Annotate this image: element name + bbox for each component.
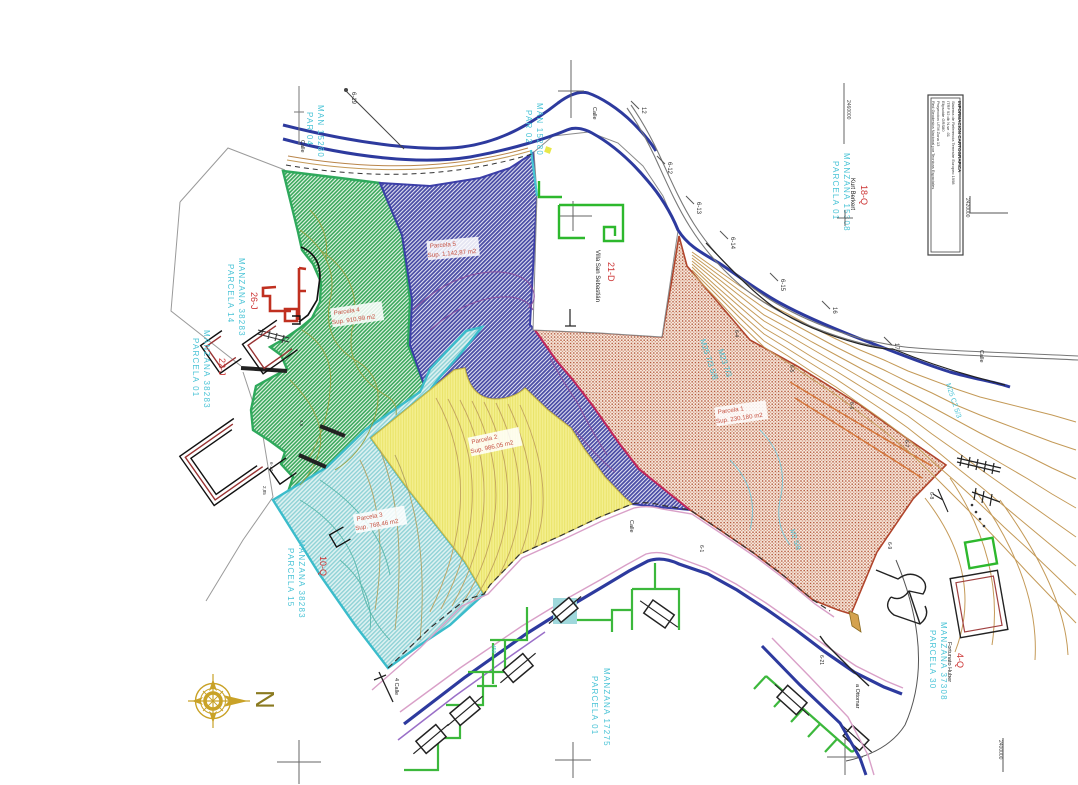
svg-text:MAN 15280: MAN 15280	[535, 103, 544, 156]
svg-text:6-7: 6-7	[903, 440, 909, 447]
svg-text:6-5: 6-5	[788, 365, 794, 372]
svg-text:PARCELA 01: PARCELA 01	[590, 676, 599, 735]
svg-text:26-J: 26-J	[249, 292, 259, 310]
svg-text:6-9: 6-9	[886, 542, 892, 549]
svg-text:PARCELA 14: PARCELA 14	[226, 264, 235, 323]
svg-text:6-1: 6-1	[698, 545, 704, 552]
svg-text:Villa San Sebastián: Villa San Sebastián	[594, 250, 600, 302]
svg-text:INFORMACION CARTOGRAFICA: INFORMACION CARTOGRAFICA	[957, 101, 962, 173]
svg-text:Calle: Calle	[978, 350, 984, 363]
svg-text:Calle: Calle	[591, 107, 597, 120]
svg-text:4,6: 4,6	[299, 420, 304, 427]
svg-text:6-12: 6-12	[666, 162, 672, 175]
svg-text:10-Q: 10-Q	[318, 556, 328, 576]
svg-text:6-14: 6-14	[729, 237, 735, 250]
svg-text:MANZANA 17275: MANZANA 17275	[602, 668, 611, 747]
svg-text:18-Q: 18-Q	[859, 185, 869, 205]
svg-text:MANZANA 38283: MANZANA 38283	[202, 330, 211, 409]
svg-text:2460000: 2460000	[845, 100, 851, 120]
svg-text:Kurt Berkert: Kurt Berkert	[849, 178, 855, 210]
svg-text:6-19: 6-19	[350, 92, 356, 105]
svg-text:MANZANA 38283: MANZANA 38283	[237, 258, 246, 337]
svg-text:MAN 15280: MAN 15280	[316, 105, 325, 158]
svg-text:PAR 04: PAR 04	[305, 112, 314, 146]
svg-text:4-Q: 4-Q	[955, 653, 965, 668]
svg-text:6-4: 6-4	[733, 330, 739, 337]
svg-text:6-6: 6-6	[848, 402, 854, 409]
svg-text:Red Geodesica Nacional por Tec: Red Geodesica Nacional por Tecnicas Espa…	[931, 101, 936, 189]
svg-text:12: 12	[640, 107, 646, 114]
svg-text:MANZANA 38283: MANZANA 38283	[297, 540, 306, 619]
svg-text:6-8: 6-8	[928, 492, 934, 499]
svg-text:Calle: Calle	[299, 140, 305, 153]
svg-text:450: 450	[490, 645, 496, 654]
svg-text:6-13: 6-13	[695, 202, 701, 215]
svg-text:PARCELA 01: PARCELA 01	[831, 161, 840, 220]
svg-text:16: 16	[831, 307, 837, 314]
svg-text:2,85: 2,85	[262, 486, 267, 495]
svg-text:6-15: 6-15	[779, 279, 785, 292]
svg-text:Fortunato Huber: Fortunato Huber	[946, 642, 952, 682]
svg-text:Calle: Calle	[628, 520, 634, 533]
svg-text:17: 17	[893, 343, 899, 350]
svg-text:6-21: 6-21	[818, 655, 824, 665]
svg-text:N: N	[250, 690, 280, 709]
svg-text:6-17: 6-17	[269, 462, 274, 472]
svg-text:PARCELA 15: PARCELA 15	[286, 548, 295, 607]
svg-text:a Ottomar: a Ottomar	[854, 684, 860, 709]
svg-text:4 Calle: 4 Calle	[393, 678, 399, 695]
svg-text:PARCELA 30: PARCELA 30	[928, 630, 937, 689]
svg-text:PARCELA 01: PARCELA 01	[191, 338, 200, 397]
svg-text:PAR 02: PAR 02	[524, 110, 533, 144]
svg-text:2420000: 2420000	[964, 198, 970, 218]
svg-text:21-D: 21-D	[606, 262, 616, 282]
svg-text:2400000: 2400000	[997, 740, 1003, 760]
svg-text:22-J: 22-J	[217, 358, 227, 376]
